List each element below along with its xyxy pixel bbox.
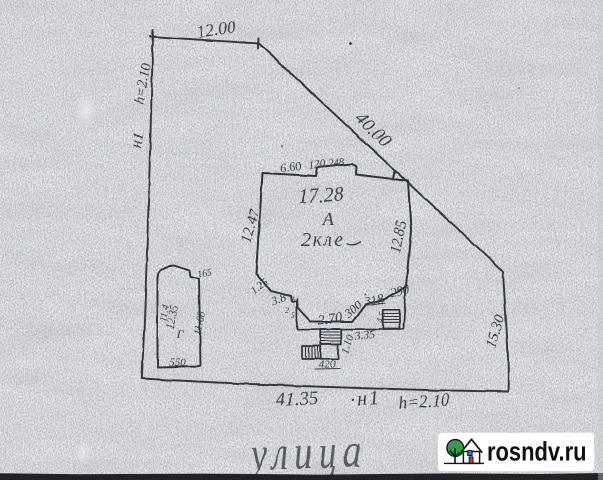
svg-text:улица: улица [246,425,367,480]
svg-text:41.35: 41.35 [275,388,319,411]
svg-text:Г: Г [176,327,185,341]
svg-text:5: 5 [291,311,295,320]
svg-text:rosndv.ru: rosndv.ru [487,437,587,467]
svg-text:17.28: 17.28 [297,183,345,208]
svg-text:2: 2 [285,306,289,315]
svg-text:248: 248 [327,156,346,170]
svg-text:h=2.10: h=2.10 [398,389,451,413]
svg-text:550: 550 [170,357,187,369]
svg-text:2кле: 2кле [302,230,345,251]
svg-text:120: 120 [308,158,327,172]
svg-text:6.60: 6.60 [280,159,302,175]
svg-text:·н1: ·н1 [349,387,382,412]
svg-text:3.35: 3.35 [353,327,376,343]
svg-text:А: А [320,209,334,230]
